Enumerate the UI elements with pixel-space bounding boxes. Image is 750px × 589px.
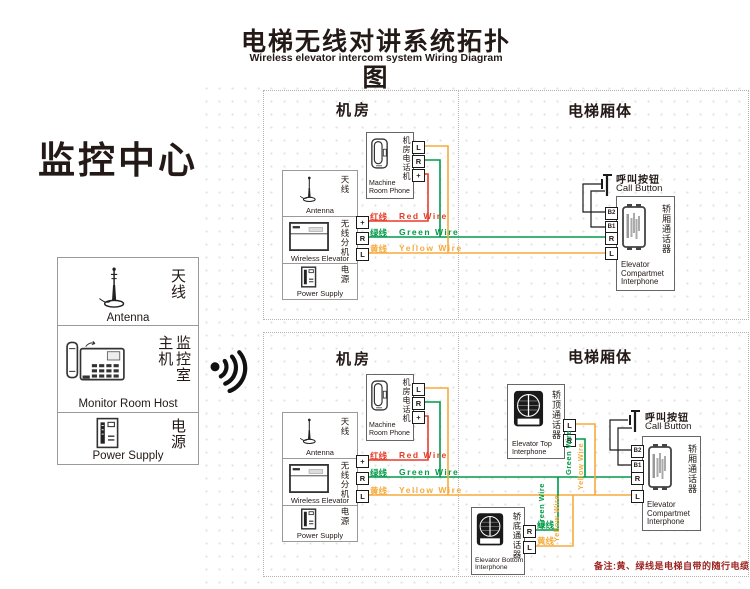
antenna-en: Antenna xyxy=(283,206,357,215)
top-interphone-en2: Interphone xyxy=(512,448,552,456)
yellow-wire-vertical-label-top: Yellow Wire xyxy=(576,443,586,490)
wireless-extension-row: 无线分机 Wireless Elevator xyxy=(283,459,357,506)
wireless-extension-en: Wireless Elevator xyxy=(283,496,357,505)
telephone-icon xyxy=(65,334,127,386)
terminal-r: R xyxy=(523,525,536,538)
monitor-center-box: 天线 Antenna 主机 监控室 Monitor Roo xyxy=(57,257,199,465)
loudspeaker-icon xyxy=(513,390,544,430)
power-zh: 电源 xyxy=(340,507,349,526)
wireless-extension-row: 无线分机 Wireless Elevator xyxy=(283,217,357,264)
compartment-interphone-en: Elevator Compartmet Interphone xyxy=(621,261,664,287)
power-en: Power Supply xyxy=(283,289,357,298)
antenna-icon xyxy=(90,264,134,310)
terminal-r: R xyxy=(412,155,425,168)
power-row: 电源 Power Supply xyxy=(283,506,357,540)
red-wire-zh: 红线 xyxy=(370,450,387,462)
machine-room-equipment-box-top: 天线 Antenna 无线分机 Wireless Elevator 电源 Pow… xyxy=(282,170,358,300)
green-wire-zh: 绿线 xyxy=(370,227,387,239)
yellow-wire-en: Yellow Wire xyxy=(399,485,463,497)
wireless-signal-icon xyxy=(202,335,256,393)
yellow-wire-en: Yellow Wire xyxy=(399,243,463,255)
terminal-l: L xyxy=(412,383,425,396)
yellow-wire-label-bottom: 黄线 Yellow Wire xyxy=(370,485,463,497)
compartment-interphone-box-bottom: 轿厢通话器 Elevator Compartmet Interphone xyxy=(642,436,701,531)
monitor-power-en: Power Supply xyxy=(58,450,198,462)
power-supply-icon xyxy=(301,266,317,288)
monitor-power-zh: 电源 xyxy=(169,418,185,450)
monitor-host-zh: 主机 监控室 xyxy=(157,335,191,383)
compartment-interphone-en: Elevator Compartmet Interphone xyxy=(647,501,690,527)
monitor-host-zh-right: 监控室 xyxy=(174,335,190,383)
power-supply-icon xyxy=(96,417,120,449)
red-wire-label-bottom: 红线 Red Wire xyxy=(370,450,448,462)
machine-room-phone-box-bottom: 机房电话机 Machine Room Phone xyxy=(366,374,414,441)
elevator-car-header-top: 电梯厢体 xyxy=(568,100,632,121)
machine-room-phone-zh: 机房电话机 xyxy=(402,136,410,181)
wiring-diagram-page: 电梯无线对讲系统拓扑图 Wireless elevator intercom s… xyxy=(0,0,750,589)
red-wire-zh: 红线 xyxy=(370,211,387,223)
elevator-top-interphone-zh: 轿顶通话器 xyxy=(551,390,560,440)
machine-room-phone-en1: Machine xyxy=(369,180,410,188)
green-wire-label-top: 绿线 Green Wire xyxy=(370,227,459,239)
terminal-r: R xyxy=(412,397,425,410)
elevator-bottom-interphone-box: 轿底通话器 Elevator Bottom Interphone xyxy=(471,507,525,575)
terminal-r: R xyxy=(631,472,644,485)
note-text: 备注:黄、绿线是电梯自带的随行电缆 xyxy=(594,559,750,572)
green-wire-bottom-drop xyxy=(423,402,440,477)
compartment-interphone-box-top: 轿厢通话器 Elevator Compartmet Interphone xyxy=(616,196,675,291)
monitor-antenna-zh: 天线 xyxy=(169,268,185,300)
green-wire-en: Green Wire xyxy=(399,467,459,479)
terminal-l: L xyxy=(356,490,369,503)
machine-room-header-bottom: 机房 xyxy=(336,348,372,369)
green-wire-vertical-label-top: Green Wire xyxy=(564,430,574,475)
terminal-l: L xyxy=(631,490,644,503)
terminal-r: R xyxy=(356,472,369,485)
antenna-en: Antenna xyxy=(283,448,357,457)
antenna-zh: 天线 xyxy=(340,175,349,194)
monitor-antenna-en: Antenna xyxy=(58,312,198,324)
wireless-extension-zh: 无线分机 xyxy=(340,461,349,499)
machine-room-equipment-box-bottom: 天线 Antenna 无线分机 Wireless Elevator 电源 Pow… xyxy=(282,412,358,542)
compartment-speaker-icon xyxy=(621,203,647,251)
terminal-b2: B2 xyxy=(631,445,644,458)
machine-room-phone-en: Machine Room Phone xyxy=(369,422,410,438)
machine-room-phone-en2: Room Phone xyxy=(369,188,410,196)
terminal-r: R xyxy=(605,232,618,245)
elevator-bottom-interphone-zh: 轿底通话器 xyxy=(512,512,521,560)
compartment-interphone-zh: 轿厢通话器 xyxy=(687,444,696,494)
antenna-icon xyxy=(295,416,321,446)
power-en: Power Supply xyxy=(283,531,357,540)
terminal-plus: + xyxy=(356,455,369,468)
terminal-l: L xyxy=(605,247,618,260)
terminal-l: L xyxy=(523,541,536,554)
handset-icon xyxy=(371,379,388,412)
compartment-interphone-zh: 轿厢通话器 xyxy=(661,204,670,254)
bottom-interphone-en1: Elevator Bottom xyxy=(475,557,523,565)
terminal-l: L xyxy=(412,141,425,154)
elevator-top-interphone-en: Elevator Top Interphone xyxy=(512,440,552,456)
green-wire-vertical-label-bottom: Green Wire xyxy=(537,483,547,528)
terminal-r: R xyxy=(356,232,369,245)
compartment-en3: Interphone xyxy=(621,278,664,287)
yellow-wire-vertical-label-bottom: Yellow Wire xyxy=(552,495,562,542)
yellow-wire-zh: 黄线 xyxy=(370,243,387,255)
monitor-host-zh-left: 主机 xyxy=(157,335,173,383)
monitor-center-heading: 监控中心 xyxy=(38,130,198,184)
page-subtitle: Wireless elevator intercom system Wiring… xyxy=(228,52,524,64)
red-wire-en: Red Wire xyxy=(399,450,448,462)
power-supply-icon xyxy=(301,508,317,530)
machine-room-phone-en1: Machine xyxy=(369,422,410,430)
terminal-plus: + xyxy=(412,169,425,182)
antenna-icon xyxy=(295,174,321,204)
antenna-row: 天线 Antenna xyxy=(283,171,357,217)
monitor-antenna-row: 天线 Antenna xyxy=(58,258,198,326)
elevator-top-interphone-box: 轿顶通话器 Elevator Top Interphone xyxy=(507,384,565,459)
terminal-b2: B2 xyxy=(605,207,618,220)
green-wire-en: Green Wire xyxy=(399,227,459,239)
monitor-host-row: 主机 监控室 Monitor Room Host xyxy=(58,326,198,413)
machine-room-phone-zh: 机房电话机 xyxy=(402,378,410,423)
terminal-plus: + xyxy=(412,411,425,424)
red-wire-en: Red Wire xyxy=(399,211,448,223)
handset-icon xyxy=(371,137,388,170)
call-button-en: Call Button xyxy=(616,183,662,194)
monitor-power-row: 电源 Power Supply xyxy=(58,413,198,463)
red-wire-label-top: 红线 Red Wire xyxy=(370,211,448,223)
antenna-zh: 天线 xyxy=(340,417,349,436)
compartment-speaker-icon xyxy=(647,443,673,491)
power-zh: 电源 xyxy=(340,265,349,284)
wireless-extension-en: Wireless Elevator xyxy=(283,254,357,263)
machine-room-phone-box-top: 机房电话机 Machine Room Phone xyxy=(366,132,414,199)
antenna-row: 天线 Antenna xyxy=(283,413,357,459)
wireless-extension-icon xyxy=(289,222,329,251)
wireless-extension-zh: 无线分机 xyxy=(340,219,349,257)
compartment-en3: Interphone xyxy=(647,518,690,527)
green-wire-label-bottom: 绿线 Green Wire xyxy=(370,467,459,479)
yellow-wire-zh: 黄线 xyxy=(370,485,387,497)
wireless-extension-icon xyxy=(289,464,329,493)
monitor-host-en: Monitor Room Host xyxy=(58,398,198,410)
power-row: 电源 Power Supply xyxy=(283,264,357,298)
machine-room-header-top: 机房 xyxy=(336,99,372,120)
green-wire-top-drop xyxy=(423,160,440,237)
machine-room-phone-en: Machine Room Phone xyxy=(369,180,410,196)
call-button-en: Call Button xyxy=(645,421,691,432)
yellow-wire-label-top: 黄线 Yellow Wire xyxy=(370,243,463,255)
terminal-plus: + xyxy=(356,216,369,229)
elevator-car-header-bottom: 电梯厢体 xyxy=(568,346,632,367)
elevator-bottom-interphone-en: Elevator Bottom Interphone xyxy=(475,557,523,572)
loudspeaker-icon xyxy=(476,512,504,549)
terminal-l: L xyxy=(356,248,369,261)
bottom-interphone-en2: Interphone xyxy=(475,564,523,572)
green-wire-zh: 绿线 xyxy=(370,467,387,479)
machine-room-phone-en2: Room Phone xyxy=(369,430,410,438)
